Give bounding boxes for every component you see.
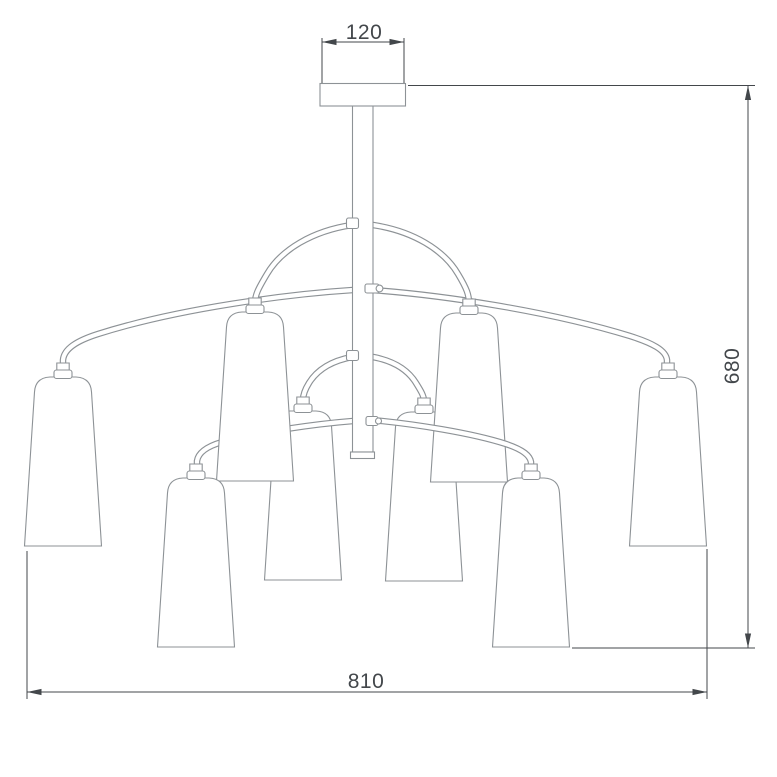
arrow-right-icon bbox=[390, 39, 405, 45]
arrow-right-icon bbox=[693, 689, 708, 695]
dimension-extension-lines bbox=[322, 38, 404, 83]
arrow-down-icon bbox=[745, 634, 751, 649]
lower-arch-arm-left bbox=[303, 357, 352, 400]
connector-upper-arch bbox=[347, 218, 359, 229]
lamp-shade-upper-outer-right bbox=[630, 363, 707, 546]
technical-drawing-page: 120 680 810 bbox=[0, 0, 777, 777]
overall-height-label: 680 bbox=[721, 348, 744, 385]
canopy-width-label: 120 bbox=[346, 21, 383, 44]
upper-ring-arm-right bbox=[372, 290, 667, 366]
lamp-shade-upper-inner-left bbox=[217, 298, 294, 481]
dimension-canopy-width: 120 bbox=[322, 21, 404, 83]
stem-finial bbox=[351, 452, 375, 459]
ceiling-canopy bbox=[320, 84, 406, 107]
dimension-overall-diameter: 810 bbox=[27, 549, 707, 699]
overall-diameter-label: 810 bbox=[348, 670, 385, 693]
upper-ring-arm-left bbox=[63, 290, 353, 366]
arrow-left-icon bbox=[27, 689, 42, 695]
connector-lower-ring-knob bbox=[376, 418, 382, 424]
chandelier-line-drawing: 120 680 810 bbox=[0, 0, 777, 777]
lamp-shade-upper-inner-right bbox=[431, 299, 508, 482]
stem-rod bbox=[353, 100, 374, 452]
arrow-left-icon bbox=[322, 39, 337, 45]
lamp-shade-lower-outer-left bbox=[158, 464, 235, 647]
stem-and-canopy bbox=[320, 84, 406, 459]
lamp-shade-lower-outer-right bbox=[493, 464, 570, 647]
arrow-up-icon bbox=[745, 86, 751, 101]
lamp-shade-upper-outer-left bbox=[25, 363, 102, 546]
lower-arch-arm-right bbox=[373, 357, 424, 401]
connector-lower-arch bbox=[347, 351, 359, 361]
connector-upper-ring-knob bbox=[376, 285, 383, 292]
